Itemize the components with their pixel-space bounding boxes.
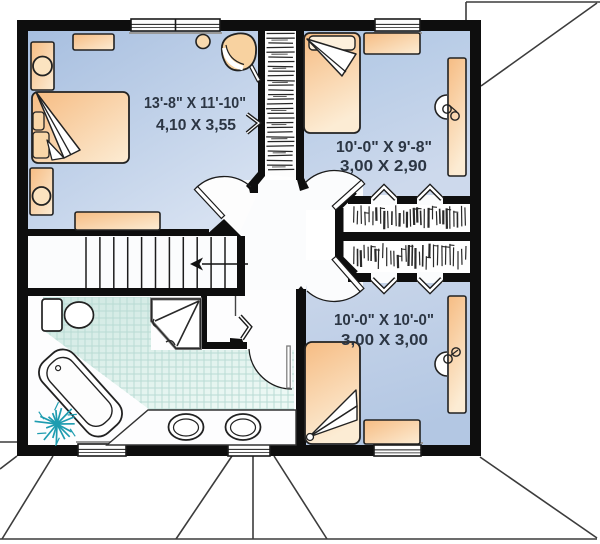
svg-text:10'-0" X 10'-0": 10'-0" X 10'-0" bbox=[334, 312, 434, 329]
svg-text:10'-0" X 9'-8": 10'-0" X 9'-8" bbox=[336, 139, 432, 156]
svg-text:3,00 X 2,90: 3,00 X 2,90 bbox=[340, 158, 427, 175]
svg-text:4,10 X 3,55: 4,10 X 3,55 bbox=[156, 117, 236, 134]
svg-text:13'-8" X 11'-10": 13'-8" X 11'-10" bbox=[144, 95, 246, 112]
svg-text:3,00 X 3,00: 3,00 X 3,00 bbox=[341, 332, 428, 349]
